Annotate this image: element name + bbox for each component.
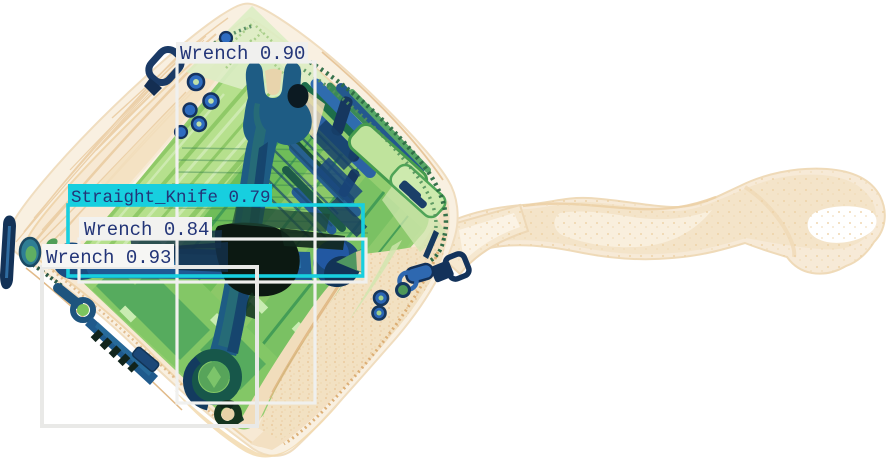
svg-text:Wrench 0.84: Wrench 0.84 (84, 219, 209, 241)
svg-text:Straight_Knife 0.79: Straight_Knife 0.79 (71, 188, 271, 208)
svg-text:Wrench 0.93: Wrench 0.93 (46, 247, 171, 269)
svg-text:Wrench 0.90: Wrench 0.90 (180, 43, 305, 65)
